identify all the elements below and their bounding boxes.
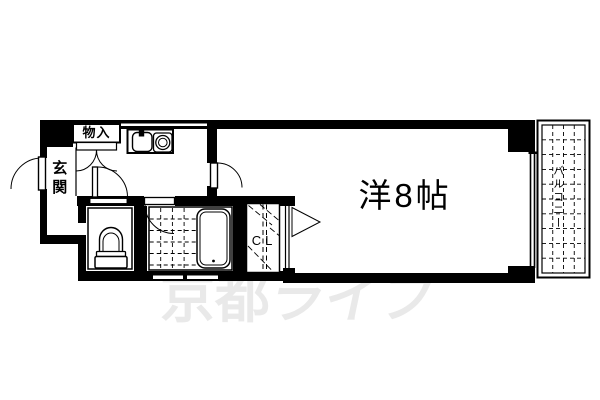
bathtub xyxy=(197,209,230,268)
bathtub-drain xyxy=(212,260,215,263)
bathroom xyxy=(145,198,233,271)
closet-track-lines xyxy=(286,206,290,269)
floorplan-drawing xyxy=(0,0,600,400)
wall-mainroom-bottom xyxy=(295,273,535,283)
bath-window xyxy=(153,276,218,280)
label-closet: CL xyxy=(245,234,283,249)
kitchen-window xyxy=(121,124,207,127)
balcony-sliding-door xyxy=(529,152,538,269)
toilet-vent-window xyxy=(90,199,127,204)
mainroom-door xyxy=(211,163,243,188)
hall-kitchen-door xyxy=(93,167,128,197)
wall-topright-block xyxy=(508,120,535,152)
wall-kitchen-divider xyxy=(207,129,217,163)
label-storage: 物入 xyxy=(73,126,120,141)
wall-toilet-bath-divider xyxy=(134,206,147,281)
kitchen-counter xyxy=(128,127,174,154)
entrance-door xyxy=(11,157,46,190)
floorplan-stage: 京都ライフ xyxy=(0,0,600,400)
wall-left-upper xyxy=(40,120,47,158)
label-main-room: 洋8帖 xyxy=(320,177,490,215)
label-entrance: 玄関 xyxy=(50,160,67,198)
toilet-room xyxy=(88,208,132,269)
label-balcony: バルコニー xyxy=(551,165,564,230)
kitchen-faucet xyxy=(139,127,144,137)
wall-toilet-left-upper xyxy=(78,206,86,223)
wall-closet-corner xyxy=(283,268,295,283)
wall-bottomright-block xyxy=(508,266,535,283)
closet-door-symbol xyxy=(292,208,320,237)
